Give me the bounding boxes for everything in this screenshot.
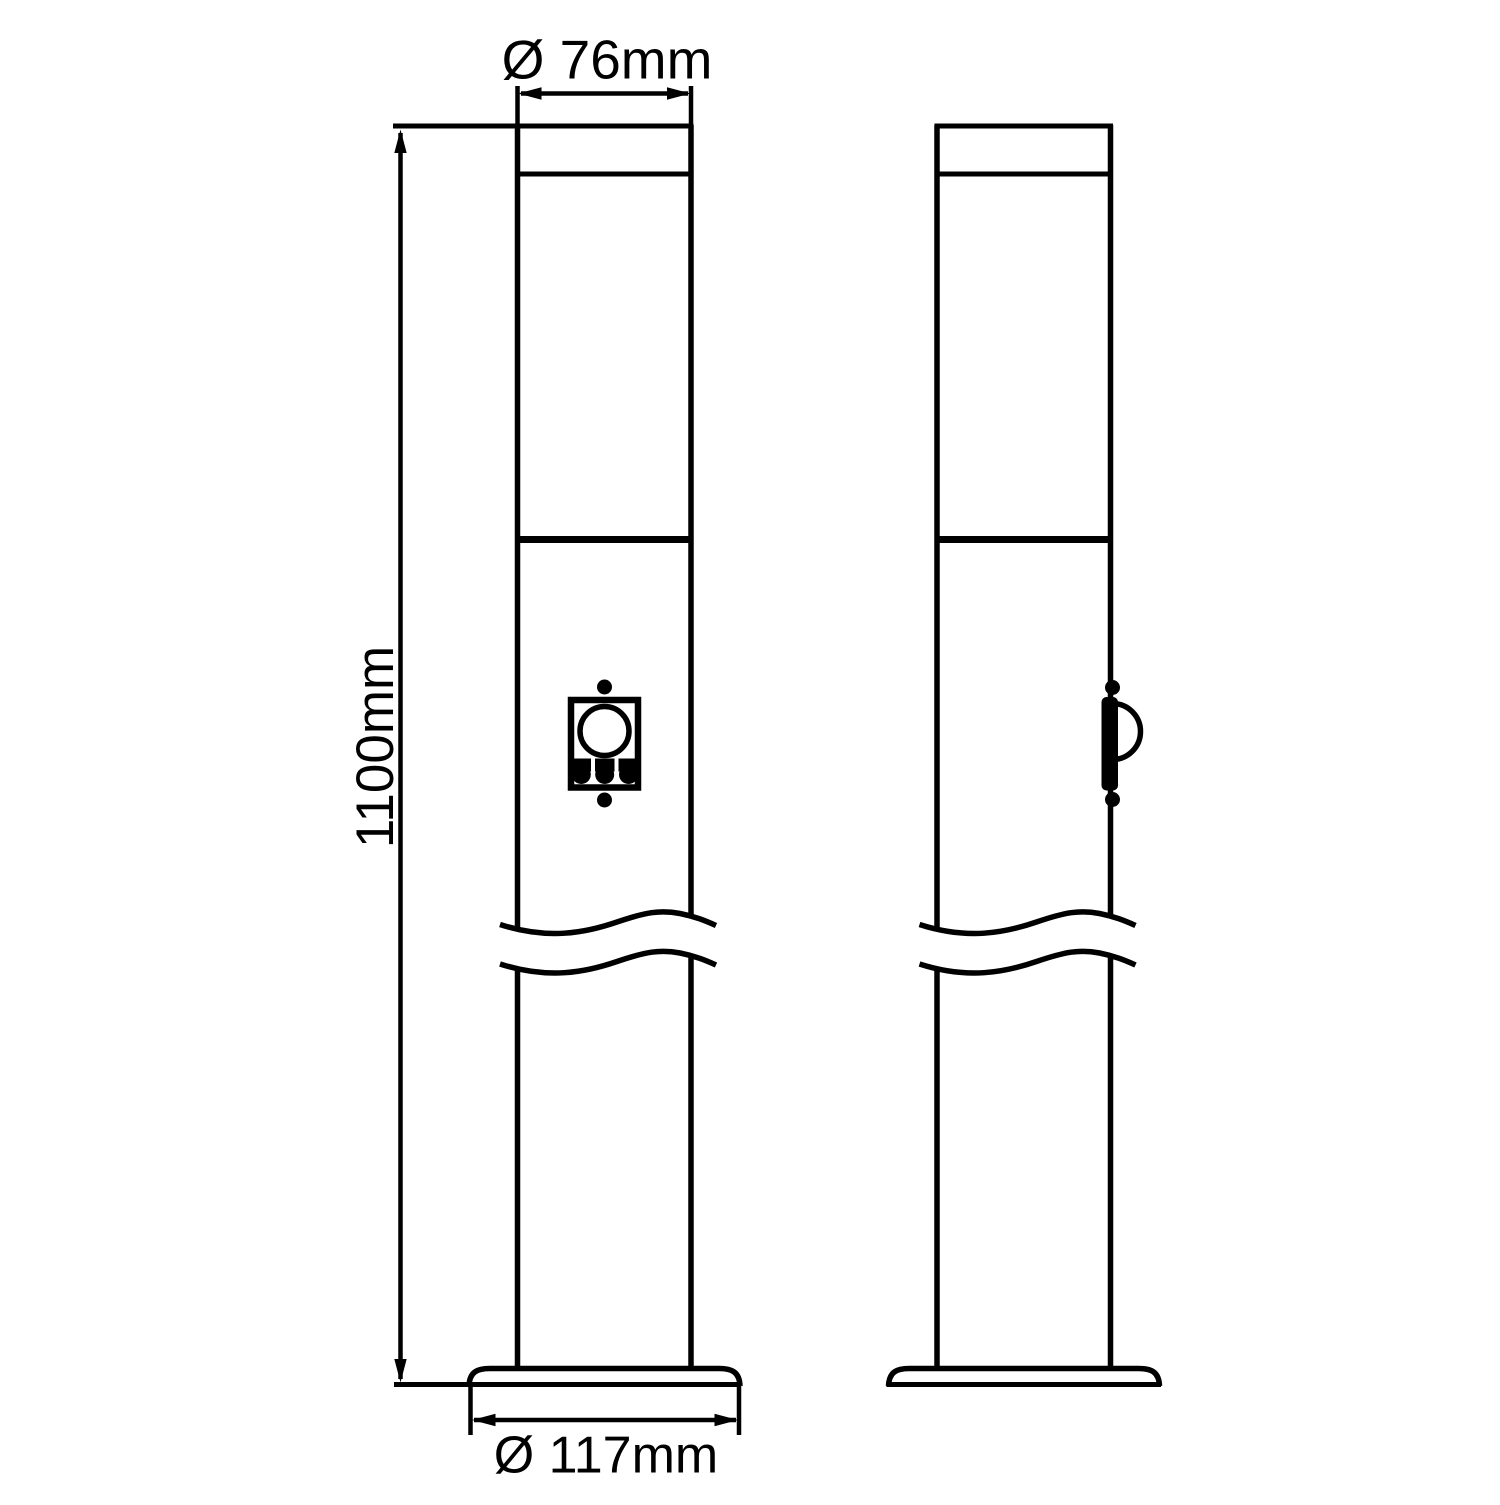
svg-text:Ø 76mm: Ø 76mm — [502, 29, 713, 91]
svg-text:Ø 117mm: Ø 117mm — [494, 1427, 718, 1485]
svg-text:1100mm: 1100mm — [346, 646, 405, 848]
